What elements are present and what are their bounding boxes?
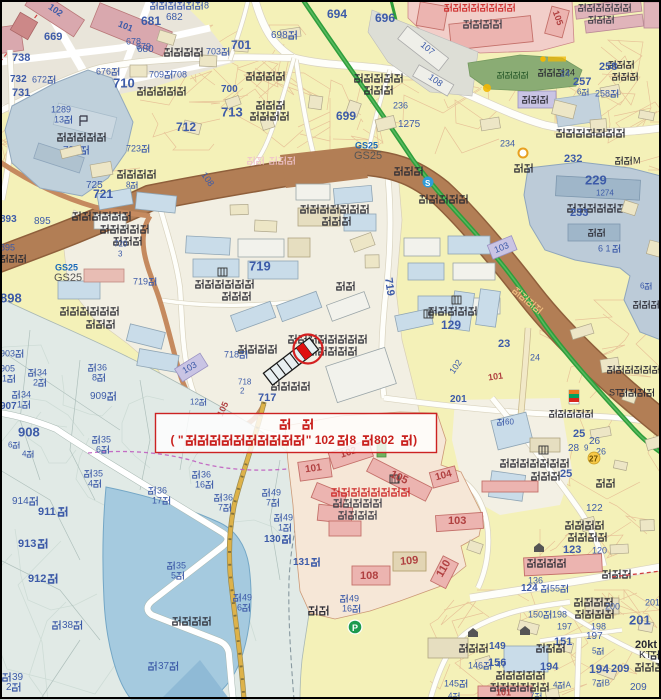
svg-text:120: 120 <box>592 545 607 555</box>
svg-text:911: 911 <box>38 506 56 518</box>
svg-text:738: 738 <box>12 52 30 64</box>
svg-text:258: 258 <box>599 61 617 73</box>
svg-text:150: 150 <box>528 609 543 619</box>
svg-text:GS25: GS25 <box>354 150 382 162</box>
svg-text:681: 681 <box>141 14 161 28</box>
svg-text:698: 698 <box>271 30 288 41</box>
svg-text:194: 194 <box>589 662 609 676</box>
svg-text:24: 24 <box>560 68 570 78</box>
svg-text:709: 709 <box>149 69 164 79</box>
svg-text:131: 131 <box>293 557 310 568</box>
svg-text:712: 712 <box>176 120 196 134</box>
svg-text:38: 38 <box>62 620 74 631</box>
svg-text:): ) <box>413 433 417 447</box>
svg-text:723: 723 <box>126 143 141 153</box>
svg-text:718: 718 <box>224 349 239 359</box>
svg-text:49: 49 <box>283 512 293 522</box>
svg-text:719: 719 <box>249 259 271 274</box>
svg-text:12: 12 <box>190 398 199 407</box>
svg-text:197: 197 <box>557 621 572 631</box>
svg-text:893: 893 <box>0 214 17 225</box>
svg-text:34: 34 <box>37 367 47 377</box>
svg-text:GS25: GS25 <box>355 140 378 150</box>
svg-text:35: 35 <box>93 468 103 478</box>
svg-text:2: 2 <box>6 682 12 693</box>
svg-text:103: 103 <box>448 515 466 527</box>
svg-text:6: 6 <box>640 282 645 291</box>
svg-text:GS25: GS25 <box>54 272 82 284</box>
svg-text:36: 36 <box>157 485 167 495</box>
svg-text:895: 895 <box>0 242 15 252</box>
svg-text:P: P <box>352 623 358 633</box>
svg-text:694: 694 <box>327 7 347 21</box>
svg-text:198: 198 <box>591 621 606 631</box>
svg-text:24: 24 <box>530 352 540 362</box>
svg-text:903: 903 <box>0 348 15 358</box>
svg-text:28: 28 <box>568 443 580 454</box>
svg-text:201: 201 <box>629 613 651 628</box>
svg-text:201: 201 <box>450 394 467 405</box>
svg-text:229: 229 <box>585 173 607 188</box>
svg-text:27: 27 <box>589 455 598 464</box>
svg-text:6 1: 6 1 <box>598 243 611 253</box>
svg-text:672: 672 <box>32 74 47 84</box>
svg-text:2: 2 <box>240 387 245 396</box>
svg-text:913: 913 <box>18 538 36 550</box>
svg-text:39: 39 <box>12 672 24 683</box>
svg-text:907: 907 <box>0 401 17 412</box>
svg-text:912: 912 <box>28 573 46 585</box>
svg-text:236: 236 <box>393 100 408 110</box>
svg-text:49: 49 <box>242 592 252 602</box>
svg-text:7: 7 <box>266 497 271 507</box>
svg-text:35: 35 <box>101 434 111 444</box>
svg-text:60: 60 <box>505 418 514 427</box>
svg-text:732: 732 <box>10 74 27 85</box>
svg-text:895: 895 <box>34 216 51 227</box>
svg-text:682: 682 <box>166 12 183 23</box>
svg-text:145: 145 <box>444 678 459 688</box>
svg-text:721: 721 <box>93 187 113 201</box>
svg-text:8: 8 <box>350 433 357 447</box>
svg-text:1289: 1289 <box>51 104 71 114</box>
svg-text:700: 700 <box>221 84 238 95</box>
svg-text:201: 201 <box>645 597 660 607</box>
svg-text:802: 802 <box>374 433 394 447</box>
svg-text:905: 905 <box>0 363 15 373</box>
svg-text:17: 17 <box>152 495 162 505</box>
svg-text:36: 36 <box>201 469 211 479</box>
svg-text:55: 55 <box>550 583 560 593</box>
svg-text:6: 6 <box>8 441 13 450</box>
svg-text:20kt: 20kt <box>635 639 657 651</box>
svg-text:197: 197 <box>586 631 603 642</box>
svg-text:1: 1 <box>278 522 283 532</box>
svg-text:719: 719 <box>133 276 148 286</box>
svg-text:4: 4 <box>553 681 558 690</box>
svg-text:1274: 1274 <box>596 189 614 198</box>
svg-text:710: 710 <box>113 76 135 91</box>
svg-text:198: 198 <box>552 609 567 619</box>
svg-text:136: 136 <box>528 575 543 585</box>
svg-text:717: 717 <box>258 392 276 404</box>
svg-text:718: 718 <box>238 378 252 387</box>
svg-text:908: 908 <box>18 425 40 440</box>
svg-text:914: 914 <box>12 496 29 507</box>
svg-text:123: 123 <box>563 544 581 556</box>
svg-text:8: 8 <box>92 372 97 382</box>
svg-text:151: 151 <box>554 636 572 648</box>
svg-text:35: 35 <box>176 560 186 570</box>
svg-text:37: 37 <box>158 661 170 672</box>
svg-text:130: 130 <box>264 534 281 545</box>
svg-text:3: 3 <box>118 250 123 259</box>
svg-text:KT: KT <box>639 650 652 661</box>
svg-text:109: 109 <box>400 554 419 568</box>
svg-text:233: 233 <box>570 207 588 219</box>
svg-text:M: M <box>633 155 641 165</box>
svg-text:( ": ( " <box>171 433 184 447</box>
svg-text:13: 13 <box>54 114 64 124</box>
svg-text:49: 49 <box>349 593 359 603</box>
svg-text:257: 257 <box>573 76 591 88</box>
svg-text:5: 5 <box>171 570 176 580</box>
svg-text:676: 676 <box>96 66 111 76</box>
svg-text:149: 149 <box>489 641 506 652</box>
svg-text:23: 23 <box>498 338 510 350</box>
svg-text:696: 696 <box>375 11 395 25</box>
svg-text:6: 6 <box>96 444 101 454</box>
svg-text:47: 47 <box>496 659 506 669</box>
svg-text:34: 34 <box>21 389 31 399</box>
svg-text:16: 16 <box>342 603 352 613</box>
svg-text:669: 669 <box>44 31 62 43</box>
svg-text:A: A <box>566 681 572 690</box>
svg-text:108: 108 <box>360 570 378 582</box>
svg-text:101: 101 <box>487 370 503 382</box>
svg-text:6: 6 <box>577 88 582 97</box>
svg-text:209: 209 <box>611 663 629 675</box>
svg-text:1: 1 <box>17 399 22 409</box>
svg-text:36: 36 <box>97 362 107 372</box>
svg-text:7: 7 <box>592 679 597 688</box>
svg-text:49: 49 <box>271 487 281 497</box>
svg-text:GS25: GS25 <box>55 262 78 272</box>
svg-text:146: 146 <box>468 660 483 670</box>
svg-text:8: 8 <box>126 181 131 190</box>
svg-text:720: 720 <box>114 240 128 249</box>
svg-text:25: 25 <box>560 468 572 480</box>
svg-text:194: 194 <box>540 661 559 673</box>
svg-text:679: 679 <box>136 41 151 51</box>
svg-text:719: 719 <box>382 277 396 297</box>
svg-text:708: 708 <box>172 69 187 79</box>
svg-text:209: 209 <box>630 682 647 693</box>
svg-text:122: 122 <box>586 503 603 514</box>
svg-text:101: 101 <box>304 462 322 475</box>
svg-text:703: 703 <box>206 46 221 56</box>
svg-text:4: 4 <box>22 450 27 459</box>
svg-text:129: 129 <box>441 318 461 332</box>
svg-text:9: 9 <box>584 444 589 453</box>
svg-text:232: 232 <box>564 153 582 165</box>
svg-text:4: 4 <box>88 478 93 488</box>
svg-text:ST: ST <box>609 387 621 397</box>
svg-text:7: 7 <box>218 502 223 512</box>
svg-text:25: 25 <box>573 428 585 440</box>
svg-text:1: 1 <box>2 373 7 383</box>
svg-text:S: S <box>425 179 431 188</box>
svg-text:234: 234 <box>500 138 515 148</box>
svg-text:2: 2 <box>33 377 38 387</box>
svg-text:713: 713 <box>221 105 243 120</box>
svg-text:699: 699 <box>336 109 356 123</box>
svg-text:701: 701 <box>231 38 251 52</box>
svg-text:731: 731 <box>12 87 30 99</box>
svg-text:909: 909 <box>90 391 107 402</box>
svg-text:898: 898 <box>0 291 22 306</box>
svg-text:16: 16 <box>195 479 205 489</box>
svg-text:101: 101 <box>496 687 511 697</box>
svg-text:5: 5 <box>592 647 597 656</box>
svg-text:1275: 1275 <box>398 119 421 130</box>
svg-text:B: B <box>605 679 610 688</box>
svg-text:258: 258 <box>595 88 610 98</box>
svg-text:36: 36 <box>223 492 233 502</box>
svg-text:200: 200 <box>605 601 620 611</box>
svg-text:" 102: " 102 <box>306 433 335 447</box>
svg-text:6: 6 <box>237 602 242 612</box>
